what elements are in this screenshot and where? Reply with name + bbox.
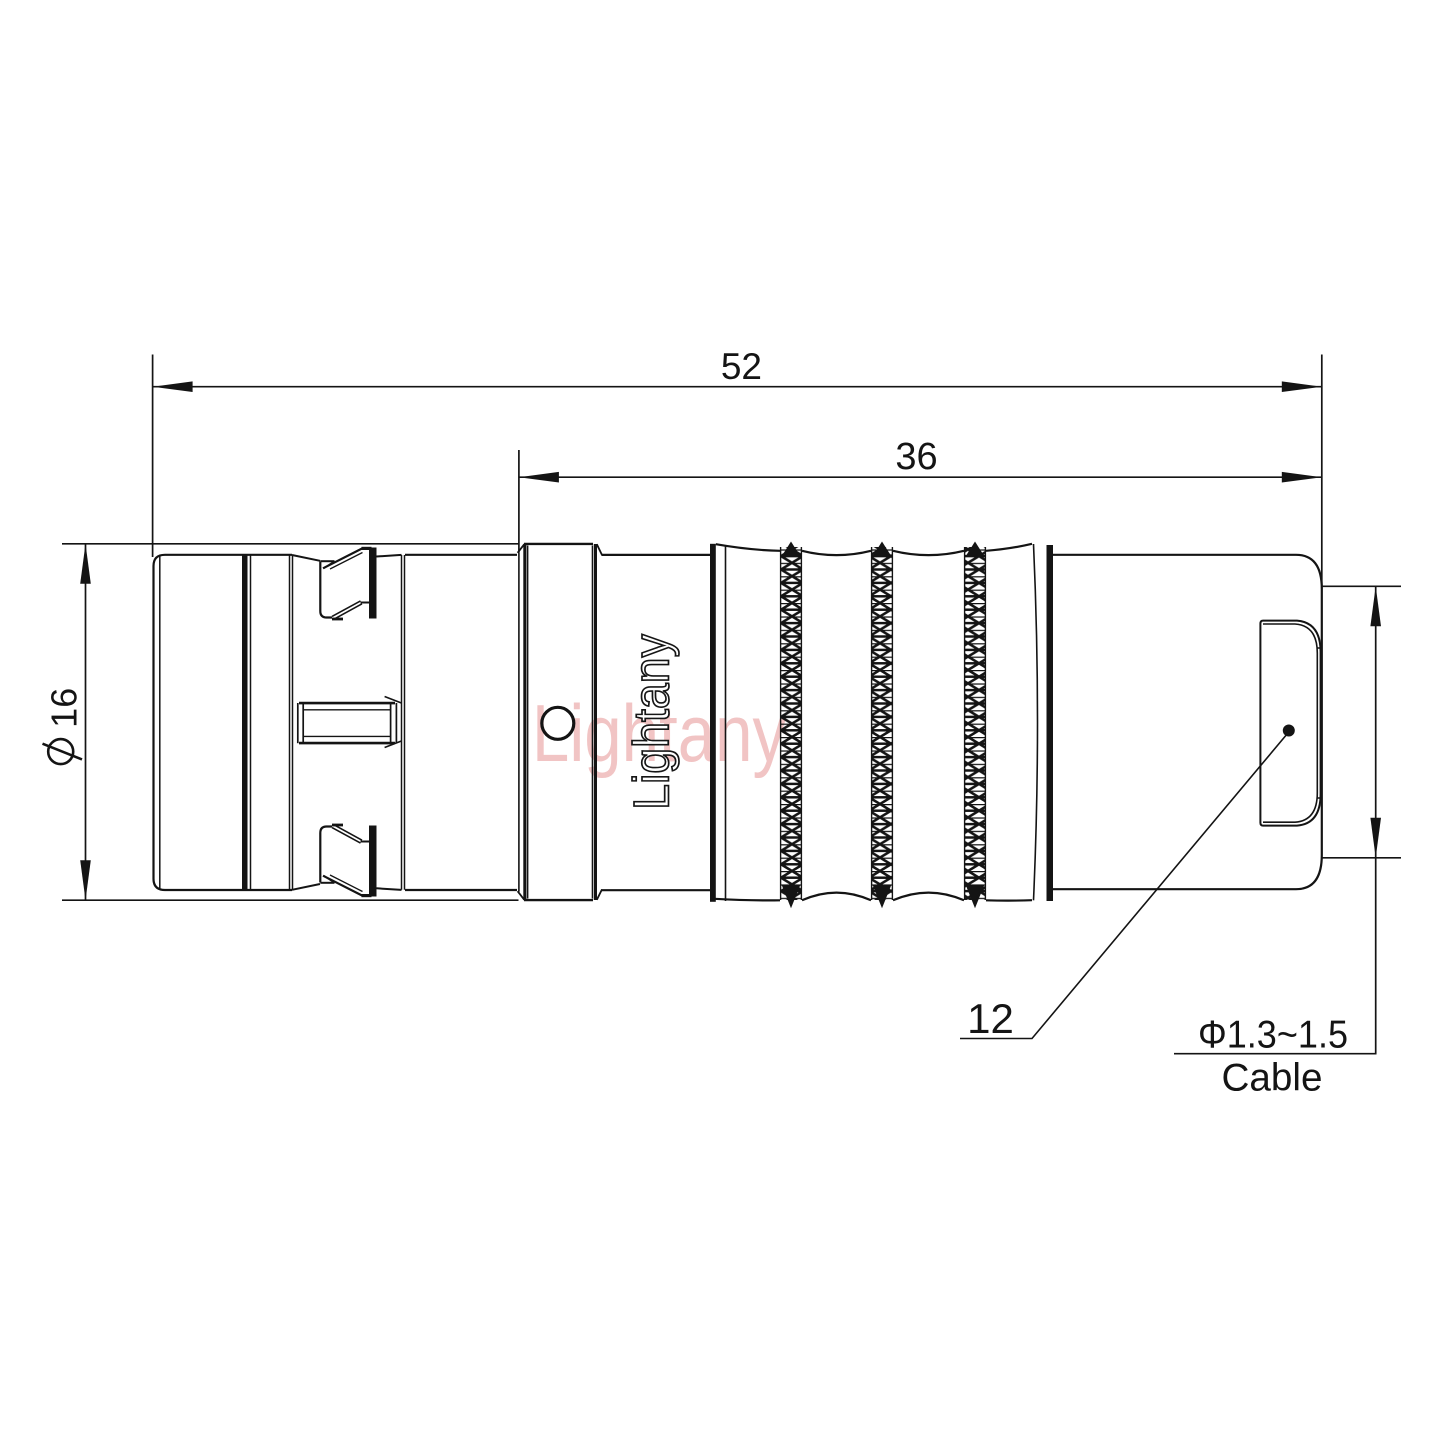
svg-text:12: 12 (967, 995, 1014, 1042)
svg-text:Φ1.3~1.5: Φ1.3~1.5 (1198, 1014, 1348, 1057)
svg-text:Cable: Cable (1222, 1057, 1323, 1100)
svg-text:36: 36 (895, 436, 937, 478)
svg-text:16: 16 (44, 688, 85, 728)
svg-text:Lightany: Lightany (624, 633, 680, 810)
svg-text:52: 52 (721, 346, 762, 387)
